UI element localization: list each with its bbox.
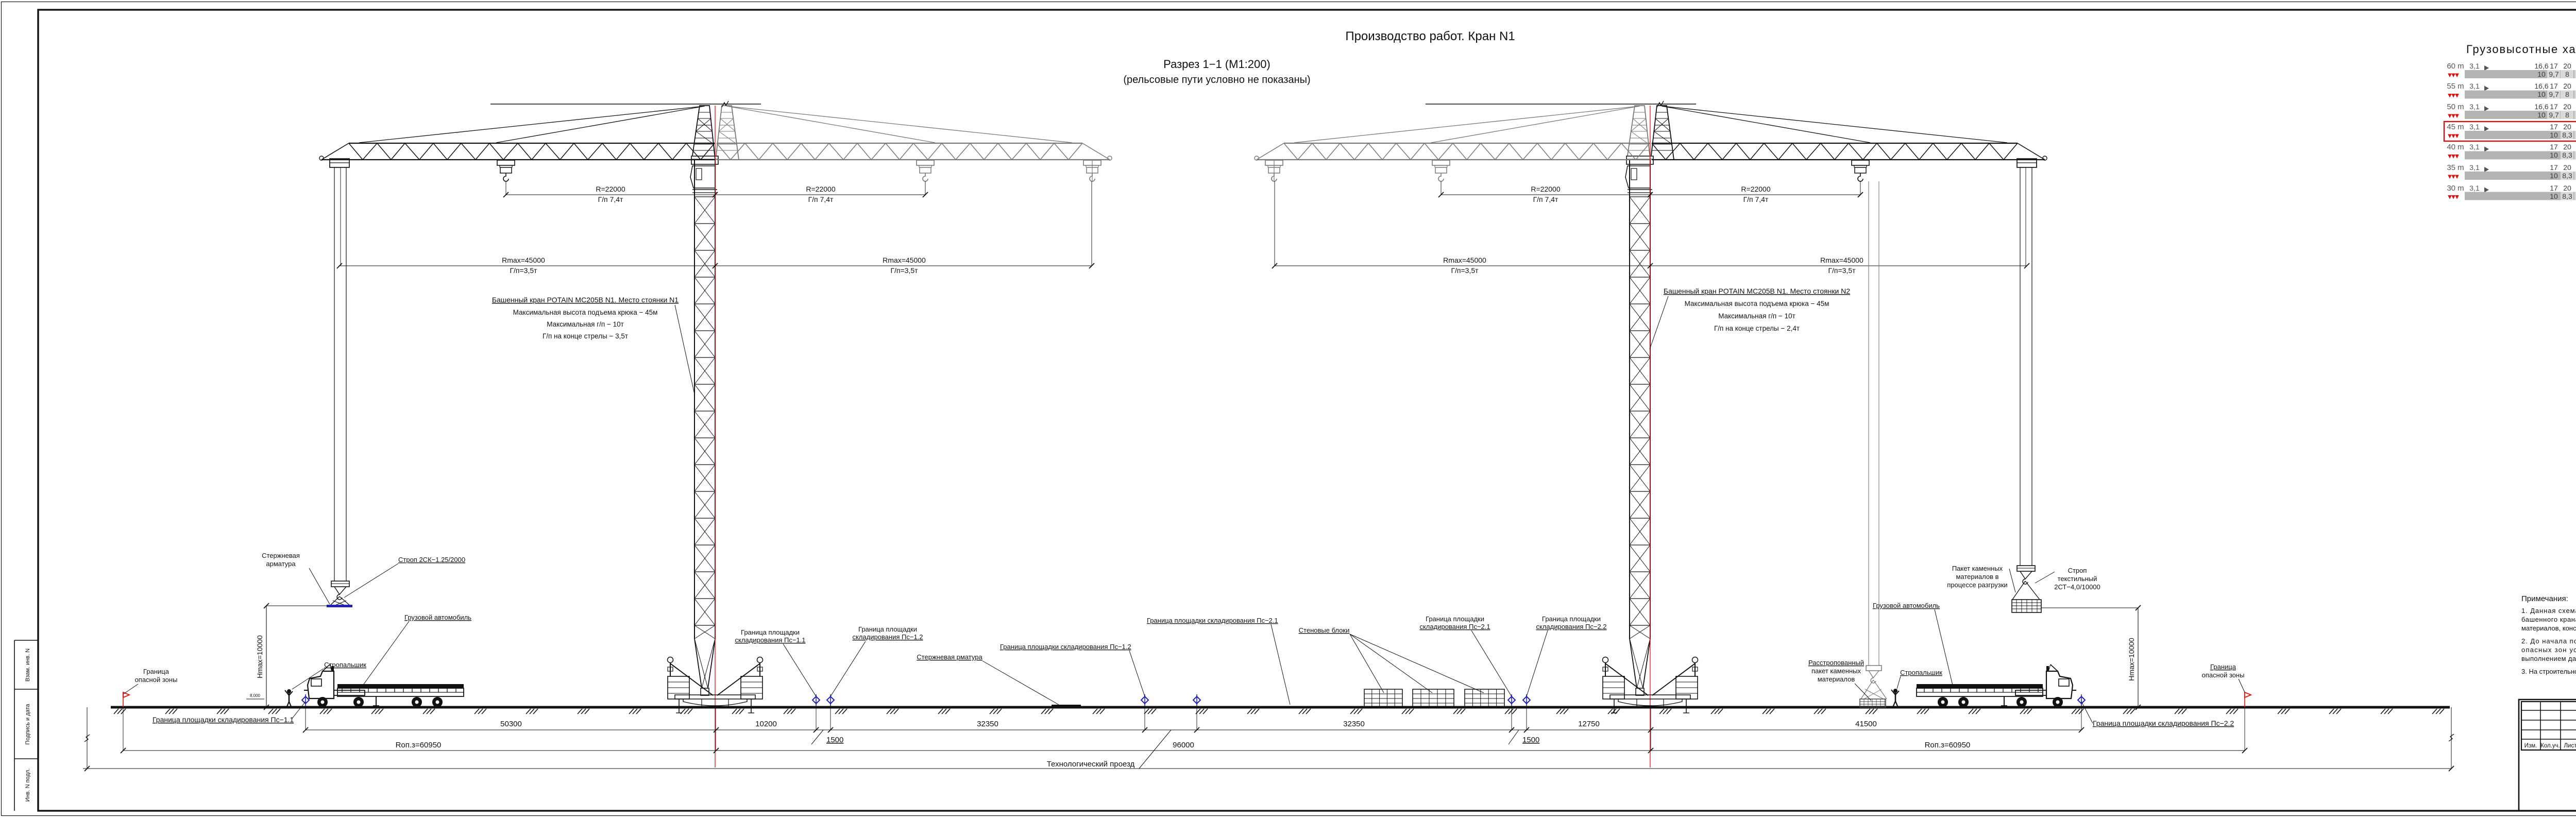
- svg-text:3. На строительной площадки не: 3. На строительной площадки не предусмот…: [2521, 668, 2576, 675]
- svg-text:8,3: 8,3: [2562, 172, 2572, 180]
- svg-text:Лист: Лист: [2564, 743, 2576, 749]
- svg-text:Rmax=45000: Rmax=45000: [883, 256, 926, 264]
- svg-text:10200: 10200: [755, 720, 777, 728]
- svg-text:башенного крана Potain MC 205B: башенного крана Potain MC 205B N1, а так…: [2521, 616, 2576, 623]
- svg-text:3,1: 3,1: [2469, 103, 2480, 111]
- svg-text:Кол.уч.: Кол.уч.: [2540, 743, 2560, 749]
- svg-text:60 m: 60 m: [2447, 62, 2464, 71]
- svg-text:20: 20: [2563, 143, 2571, 151]
- svg-text:8.000: 8.000: [250, 693, 261, 698]
- svg-text:Граница площадки складирован: Граница площадки складирования Пс−1.1: [152, 715, 294, 724]
- svg-text:8,3: 8,3: [2562, 131, 2572, 139]
- svg-text:Максимальная г/п − 10т: Максимальная г/п − 10т: [1718, 312, 1795, 320]
- svg-text:R=22000: R=22000: [596, 185, 625, 193]
- svg-text:Подпись и дата: Подпись и дата: [25, 704, 31, 745]
- svg-text:Граница: Граница: [143, 668, 170, 675]
- svg-text:Hmax=10000: Hmax=10000: [256, 635, 264, 678]
- svg-text:Граница площадки: Граница площадки: [741, 628, 800, 636]
- svg-text:складирования Пс−1.2: складирования Пс−1.2: [852, 633, 923, 641]
- svg-text:45 m: 45 m: [2447, 123, 2464, 131]
- svg-text:Стеновые блоки: Стеновые блоки: [1299, 626, 1350, 634]
- svg-text:Стропальшик: Стропальшик: [1900, 669, 1942, 676]
- svg-text:10: 10: [2550, 151, 2558, 159]
- svg-text:55 m: 55 m: [2447, 82, 2464, 91]
- svg-text:2СТ−4,0/10000: 2СТ−4,0/10000: [2054, 583, 2100, 591]
- svg-text:17: 17: [2550, 184, 2558, 192]
- svg-text:17: 17: [2550, 123, 2558, 131]
- svg-text:17: 17: [2550, 163, 2558, 172]
- svg-text:20: 20: [2563, 184, 2571, 192]
- svg-text:3,1: 3,1: [2469, 143, 2480, 151]
- svg-text:арматура: арматура: [266, 560, 296, 568]
- svg-text:R=22000: R=22000: [806, 185, 835, 193]
- svg-text:40 m: 40 m: [2447, 143, 2464, 151]
- svg-text:3,1: 3,1: [2469, 163, 2480, 172]
- svg-text:Примечания:: Примечания:: [2521, 594, 2568, 603]
- svg-text:Rmax=45000: Rmax=45000: [502, 256, 545, 264]
- svg-text:16,6: 16,6: [2534, 103, 2548, 111]
- svg-text:16,6: 16,6: [2534, 62, 2548, 70]
- svg-text:3,1: 3,1: [2469, 62, 2480, 70]
- svg-text:Граница площадки складирован: Граница площадки складирования Пс−1.2: [1000, 643, 1131, 651]
- svg-text:Разрез 1−1 (М1:200): Разрез 1−1 (М1:200): [1163, 58, 1270, 71]
- svg-text:Максимальная высота подъема: Максимальная высота подъема крюка − 45м: [513, 309, 658, 316]
- svg-text:Стержневая рматура: Стержневая рматура: [917, 653, 982, 661]
- svg-text:Пакет каменных: Пакет каменных: [1952, 565, 2003, 572]
- svg-text:9,7: 9,7: [2549, 70, 2559, 78]
- svg-text:Башенный кран POTAIN МС205В: Башенный кран POTAIN МС205В N1. Место ст…: [1664, 287, 1850, 295]
- svg-text:50300: 50300: [500, 720, 522, 728]
- svg-text:Стержневая: Стержневая: [262, 552, 300, 559]
- svg-text:17: 17: [2550, 62, 2558, 70]
- svg-text:складирования Пс−2.2: складирования Пс−2.2: [1536, 623, 1606, 630]
- svg-text:3,1: 3,1: [2469, 184, 2480, 192]
- svg-text:Г/п 7,4т: Г/п 7,4т: [1743, 195, 1769, 203]
- svg-text:32350: 32350: [1343, 720, 1365, 728]
- svg-text:Г/п=3,5т: Г/п=3,5т: [510, 266, 537, 275]
- svg-text:20: 20: [2563, 62, 2571, 70]
- svg-text:8: 8: [2565, 70, 2569, 78]
- svg-text:Hmax=10000: Hmax=10000: [2127, 638, 2136, 681]
- svg-text:20: 20: [2563, 163, 2571, 172]
- svg-text:35 m: 35 m: [2447, 163, 2464, 172]
- svg-text:Граница площадки: Граница площадки: [858, 625, 917, 633]
- svg-text:Инв. N подл.: Инв. N подл.: [25, 769, 31, 802]
- svg-text:Строп 2СК−1.25/2000: Строп 2СК−1.25/2000: [398, 556, 465, 564]
- svg-text:Грузовой автомобиль: Грузовой автомобиль: [1873, 602, 1940, 609]
- svg-text:20: 20: [2563, 123, 2571, 131]
- svg-text:Взам. инв. N: Взам. инв. N: [25, 649, 31, 681]
- svg-text:опасной зоны: опасной зоны: [2202, 671, 2245, 679]
- svg-text:Г/п на конце стрелы − 2,4: Г/п на конце стрелы − 2,4т: [1714, 325, 1800, 332]
- svg-text:17: 17: [2550, 103, 2558, 111]
- svg-text:Башенный кран POTAIN МС205В: Башенный кран POTAIN МС205В N1. Место ст…: [492, 296, 679, 304]
- svg-text:Rоп.з=60950: Rоп.з=60950: [1925, 741, 1971, 749]
- svg-text:(рельсовые пути условно не: (рельсовые пути условно не показаны): [1123, 74, 1310, 86]
- svg-text:выполнением данного пункта Во: выполнением данного пункта Возложить на …: [2521, 655, 2576, 662]
- svg-text:материалов, конструкций и обор: материалов, конструкций и оборудования.: [2521, 624, 2576, 632]
- svg-text:17: 17: [2550, 143, 2558, 151]
- svg-text:Производство работ. Кран N1: Производство работ. Кран N1: [1345, 29, 1515, 43]
- svg-text:3,1: 3,1: [2469, 82, 2480, 90]
- svg-text:Граница: Граница: [2210, 663, 2236, 671]
- svg-text:Граница площадки: Граница площадки: [1542, 615, 1601, 623]
- svg-text:Грузовысотные характеристики: Грузовысотные характеристики башенного к…: [2466, 43, 2576, 56]
- svg-text:8: 8: [2565, 90, 2569, 98]
- svg-text:Изм.: Изм.: [2524, 743, 2537, 749]
- svg-text:3,1: 3,1: [2469, 123, 2480, 131]
- svg-text:30 m: 30 m: [2447, 184, 2464, 193]
- svg-text:1. Данная схема отображает реш: 1. Данная схема отображает решения по ор…: [2521, 607, 2576, 615]
- svg-text:10: 10: [2550, 172, 2558, 180]
- svg-text:Rоп.з=60950: Rоп.з=60950: [396, 741, 442, 749]
- svg-text:складирования Пс−1.1: складирования Пс−1.1: [735, 636, 805, 644]
- svg-text:Rmax=45000: Rmax=45000: [1820, 256, 1863, 264]
- svg-text:Технологический проезд: Технологический проезд: [1047, 760, 1135, 769]
- svg-text:9,7: 9,7: [2549, 111, 2559, 119]
- svg-text:опасных зон установить сигналь: опасных зон установить сигнальное огражд…: [2521, 646, 2576, 654]
- svg-text:41500: 41500: [1855, 720, 1877, 728]
- svg-text:R=22000: R=22000: [1741, 185, 1770, 193]
- svg-text:Г/п 7,4т: Г/п 7,4т: [808, 195, 834, 203]
- svg-text:96000: 96000: [1173, 741, 1194, 749]
- svg-text:Граница площадки складирован: Граница площадки складирования Пс−2.2: [2093, 719, 2234, 727]
- svg-text:текстильный: текстильный: [2058, 575, 2097, 583]
- svg-text:пакет каменных: пакет каменных: [1811, 667, 1861, 675]
- svg-text:9,7: 9,7: [2549, 90, 2559, 98]
- svg-text:процессе разгрузки: процессе разгрузки: [1947, 581, 2007, 589]
- svg-text:Максимальная г/п − 10т: Максимальная г/п − 10т: [547, 320, 624, 328]
- svg-text:Г/п=3,5т: Г/п=3,5т: [1451, 266, 1479, 275]
- svg-text:17: 17: [2550, 82, 2558, 90]
- svg-text:складирования Пс−2.1: складирования Пс−2.1: [1419, 623, 1490, 630]
- svg-text:20: 20: [2563, 82, 2571, 90]
- svg-text:1500: 1500: [826, 736, 843, 744]
- svg-text:2. До начала погрузочно−разгру: 2. До начала погрузочно−разгрузочных раб…: [2521, 637, 2576, 645]
- svg-text:Г/п=3,5т: Г/п=3,5т: [1828, 266, 1856, 275]
- svg-text:10: 10: [2537, 70, 2546, 78]
- svg-text:материалов в: материалов в: [1956, 573, 1998, 581]
- svg-text:8,3: 8,3: [2562, 151, 2572, 159]
- svg-text:Максимальная высота подъема: Максимальная высота подъема крюка − 45м: [1685, 300, 1829, 308]
- svg-text:Граница площадки складирован: Граница площадки складирования Пс−2.1: [1147, 617, 1278, 624]
- svg-text:50 m: 50 m: [2447, 103, 2464, 111]
- svg-text:опасной зоны: опасной зоны: [135, 676, 178, 684]
- svg-text:1500: 1500: [1522, 736, 1539, 744]
- svg-text:16,6: 16,6: [2534, 82, 2548, 90]
- svg-text:R=22000: R=22000: [1531, 185, 1560, 193]
- svg-text:Г/п на конце стрелы − 3,5: Г/п на конце стрелы − 3,5т: [543, 332, 628, 340]
- svg-text:материалов: материалов: [1818, 675, 1855, 683]
- svg-text:Граница площадки: Граница площадки: [1426, 615, 1484, 623]
- svg-text:Rmax=45000: Rmax=45000: [1443, 256, 1486, 264]
- svg-text:Строп: Строп: [2068, 567, 2087, 574]
- svg-text:10: 10: [2537, 90, 2546, 98]
- svg-text:Грузовой автомобиль: Грузовой автомобиль: [404, 613, 471, 621]
- svg-text:8,3: 8,3: [2562, 192, 2572, 200]
- svg-text:Г/п 7,4т: Г/п 7,4т: [1533, 195, 1558, 203]
- svg-text:8: 8: [2565, 111, 2569, 119]
- svg-text:10: 10: [2550, 192, 2558, 200]
- svg-text:10: 10: [2537, 111, 2546, 119]
- svg-text:32350: 32350: [977, 720, 998, 728]
- svg-text:Г/п=3,5т: Г/п=3,5т: [890, 266, 918, 275]
- svg-text:Расстропованный: Расстропованный: [1808, 659, 1864, 667]
- svg-text:Г/п 7,4т: Г/п 7,4т: [598, 195, 623, 203]
- svg-text:10: 10: [2550, 131, 2558, 139]
- svg-text:12750: 12750: [1578, 720, 1600, 728]
- svg-text:20: 20: [2563, 103, 2571, 111]
